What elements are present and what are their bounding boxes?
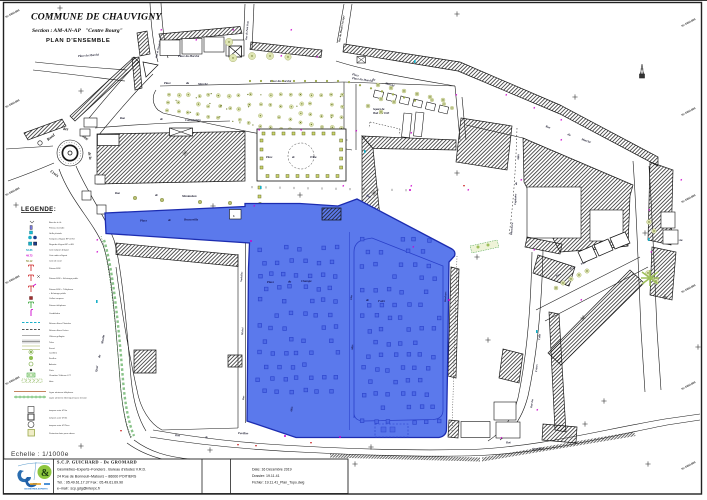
svg-text:Champe: Champe xyxy=(301,279,312,283)
svg-text:tampon acier Ø 25cm: tampon acier Ø 25cm xyxy=(49,424,70,427)
svg-text:COMMUNE DE CHAUVIGNY: COMMUNE DE CHAUVIGNY xyxy=(31,12,162,23)
svg-text:LEGENDE:: LEGENDE: xyxy=(21,206,56,213)
svg-text:Michel: Michel xyxy=(241,327,244,336)
svg-text:Allée: Allée xyxy=(351,344,354,351)
svg-text:tampon acier Ø 3m: tampon acier Ø 3m xyxy=(49,417,67,420)
svg-text:du: du xyxy=(288,280,292,284)
svg-text:Rue: Rue xyxy=(506,440,512,444)
svg-text:Section : AM-AN-AP: Section : AM-AN-AP xyxy=(32,28,81,34)
svg-text:Conifère: Conifère xyxy=(49,353,58,355)
svg-text:GEOMETRES-EXPERTS: GEOMETRES-EXPERTS xyxy=(24,489,48,491)
svg-text:Puits: Puits xyxy=(49,369,54,372)
svg-text:Coffret coupure: Coffret coupure xyxy=(49,297,65,300)
svg-text:Montauban: Montauban xyxy=(181,194,197,198)
svg-text:Capitaine: Capitaine xyxy=(514,193,517,205)
svg-text:Square du: Square du xyxy=(373,108,385,111)
svg-text:e–mail : scp.gdg@interpc.fr: e–mail : scp.gdg@interpc.fr xyxy=(57,487,101,491)
svg-text:50.12: 50.12 xyxy=(26,259,33,263)
svg-text:Protection bois pour arbres: Protection bois pour arbres xyxy=(49,432,75,435)
svg-text:Poteau EDF + Eclairage public: Poteau EDF + Eclairage public xyxy=(49,277,79,280)
svg-text:Tampons d'égout EP et EU: Tampons d'égout EP et EU xyxy=(49,238,75,241)
svg-text:Grille pluviale: Grille pluviale xyxy=(49,233,63,235)
svg-text:Chambre Télécom L2T: Chambre Télécom L2T xyxy=(49,375,72,377)
svg-text:Pavillon: Pavillon xyxy=(238,431,249,435)
svg-text:Nadaillac: Nadaillac xyxy=(240,271,244,283)
svg-text:S.C.P. GUICHARD - De GROMARD: S.C.P. GUICHARD - De GROMARD xyxy=(57,460,137,465)
svg-text:Cote de seuil: Cote de seuil xyxy=(49,260,62,263)
svg-text:Poteau téléphone: Poteau téléphone xyxy=(49,304,67,307)
svg-text:+ Eclairage public: + Eclairage public xyxy=(49,293,67,295)
svg-text:Place: Place xyxy=(266,156,273,159)
svg-text:Place: Place xyxy=(140,219,148,223)
svg-text:Place du Marché: Place du Marché xyxy=(270,79,292,83)
svg-text:Brassoville: Brassoville xyxy=(183,218,199,222)
svg-text:Rue: Rue xyxy=(175,433,181,437)
svg-text:Colombelein: Colombelein xyxy=(185,118,201,122)
svg-text:Calle: Calle xyxy=(538,333,542,340)
svg-text:Poteau incendie: Poteau incendie xyxy=(49,227,65,230)
svg-text:52.86: 52.86 xyxy=(26,248,33,252)
svg-text:Ligne aérienne électrique bass: Ligne aérienne électrique basse tension xyxy=(49,397,88,400)
svg-text:Talus: Talus xyxy=(49,342,54,344)
svg-text:Marché: Marché xyxy=(197,82,208,86)
svg-text:Tribu: Tribu xyxy=(310,156,317,159)
svg-text:"Centre Bourg": "Centre Bourg" xyxy=(85,28,123,34)
svg-text:PLAN D'ENSEMBLE: PLAN D'ENSEMBLE xyxy=(46,38,110,44)
svg-text:Candélabre: Candélabre xyxy=(49,313,61,315)
svg-text:49.73: 49.73 xyxy=(26,254,33,258)
svg-text:du: du xyxy=(186,81,190,85)
svg-text:Bouche à clé: Bouche à clé xyxy=(49,222,62,224)
svg-text:24 Rue de Bonneuil–Matours: 24 Rue de Bonneuil–Matours – 86000 POITI… xyxy=(57,475,137,479)
svg-text:Cote radier d'égout: Cote radier d'égout xyxy=(49,254,68,257)
svg-text:Poteau EDF + Téléphone: Poteau EDF + Téléphone xyxy=(49,288,74,291)
svg-text:Réseau Eaux Usées: Réseau Eaux Usées xyxy=(49,330,69,332)
svg-text:Clôture grillagée: Clôture grillagée xyxy=(49,335,65,338)
svg-text:Place du Marché: Place du Marché xyxy=(178,54,200,58)
svg-text:Ligne aérienne téléphone: Ligne aérienne téléphone xyxy=(49,391,74,394)
svg-text:Place: Place xyxy=(164,81,171,85)
svg-text:Feuillus: Feuillus xyxy=(49,358,56,360)
svg-text:Date: 16 Décembre 2019: Date: 16 Décembre 2019 xyxy=(252,468,292,472)
svg-text:Allée: Allée xyxy=(517,153,520,161)
svg-text:&: & xyxy=(41,468,49,479)
svg-text:Géomètres–Experts–Fonciers .: Géomètres–Experts–Fonciers . Bureau d'ét… xyxy=(57,468,146,472)
svg-text:Foire: Foire xyxy=(378,299,386,303)
svg-text:Place: Place xyxy=(267,280,275,284)
svg-text:Fossé: Fossé xyxy=(49,348,56,350)
svg-text:Bandeurs: Bandeurs xyxy=(444,292,447,303)
svg-text:Echelle : 1/1000e: Echelle : 1/1000e xyxy=(11,451,69,458)
svg-text:Dossier: 19.11.41: Dossier: 19.11.41 xyxy=(252,474,280,478)
svg-text:Arbuste: Arbuste xyxy=(49,363,57,366)
svg-text:Tél. : 05.49.61.17.37 Fax :: Tél. : 05.49.61.17.37 Fax : 05.49.61.69.… xyxy=(57,481,123,485)
svg-text:du: du xyxy=(515,182,518,186)
svg-text:Cote tampon d'égout: Cote tampon d'égout xyxy=(49,249,69,252)
svg-text:Rue: Rue xyxy=(120,116,126,120)
svg-text:tampon acier Ø 2m: tampon acier Ø 2m xyxy=(49,409,67,412)
svg-text:Rue: Rue xyxy=(115,191,121,195)
svg-text:Poteau EDF: Poteau EDF xyxy=(49,267,61,270)
svg-text:Regards d'égout EP et EU: Regards d'égout EP et EU xyxy=(49,243,74,246)
svg-text:Fichier: 19.11.41_Plan_Topo.d: Fichier: 19.11.41_Plan_Topo.dwg xyxy=(252,481,304,485)
svg-text:Réseau Eaux Pluviales: Réseau Eaux Pluviales xyxy=(49,323,71,325)
